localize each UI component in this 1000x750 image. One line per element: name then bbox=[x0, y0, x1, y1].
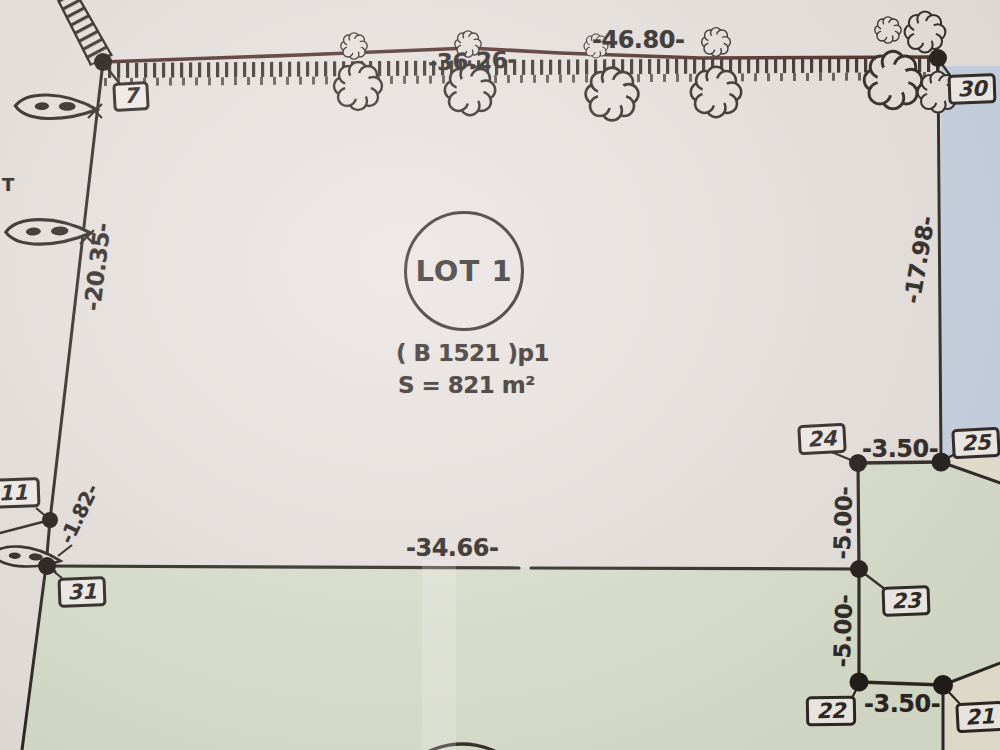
dimension-bottom: -34.66- bbox=[406, 534, 498, 562]
lot-name: LOT 1 bbox=[415, 254, 512, 288]
parcel-reference: ( B 1521 )p1 bbox=[396, 340, 549, 366]
point-box-11: 11 bbox=[0, 477, 41, 509]
point-box-23: 23 bbox=[881, 585, 930, 617]
point-box-21: 21 bbox=[955, 701, 1000, 733]
dimension-24-23: -5.00- bbox=[829, 481, 858, 566]
lot-circle: LOT 1 bbox=[404, 211, 524, 331]
dimension-24-25: -3.50- bbox=[862, 435, 938, 463]
lot-area: S = 821 m² bbox=[398, 372, 535, 398]
point-box-25: 25 bbox=[951, 427, 1000, 459]
blue-area bbox=[941, 66, 1000, 458]
point-box-22: 22 bbox=[806, 696, 857, 727]
point-box-24: 24 bbox=[797, 423, 847, 455]
dimension-23-22: -5.00- bbox=[829, 589, 858, 674]
edge-note: T bbox=[2, 174, 14, 195]
hedge-band bbox=[103, 57, 938, 86]
point-box-31: 31 bbox=[57, 576, 106, 608]
point-box-30: 30 bbox=[947, 73, 996, 105]
dimension-top-inner: -36.26- bbox=[428, 46, 517, 75]
cadastral-plan: -46.80- -36.26- -20.35- -17.98- -34.66- … bbox=[0, 0, 1000, 750]
point-box-7: 7 bbox=[112, 81, 149, 112]
dimension-top-outer: -46.80- bbox=[592, 26, 684, 54]
dimension-22-21: -3.50- bbox=[864, 690, 940, 718]
